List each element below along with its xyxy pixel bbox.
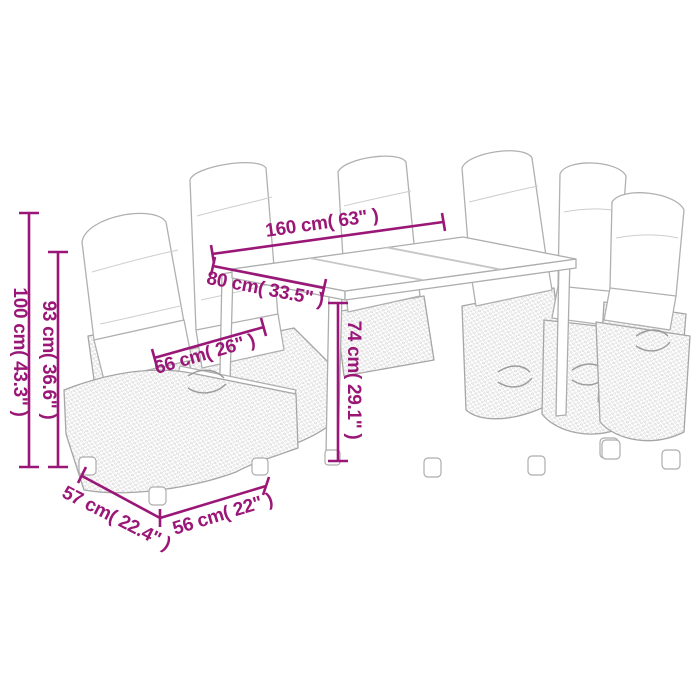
dimension-label-total-height: 100 cm( 43.3" ) [8,287,30,416]
product-dimension-diagram: 100 cm( 43.3" ) 93 cm( 36.6" ) 160 cm( 6… [0,0,700,700]
chair-back-right [462,151,566,475]
dimension-label-table-height: 74 cm( 29.1" ) [342,321,364,440]
dimension-label-backrest-height: 93 cm( 36.6" ) [37,301,59,420]
